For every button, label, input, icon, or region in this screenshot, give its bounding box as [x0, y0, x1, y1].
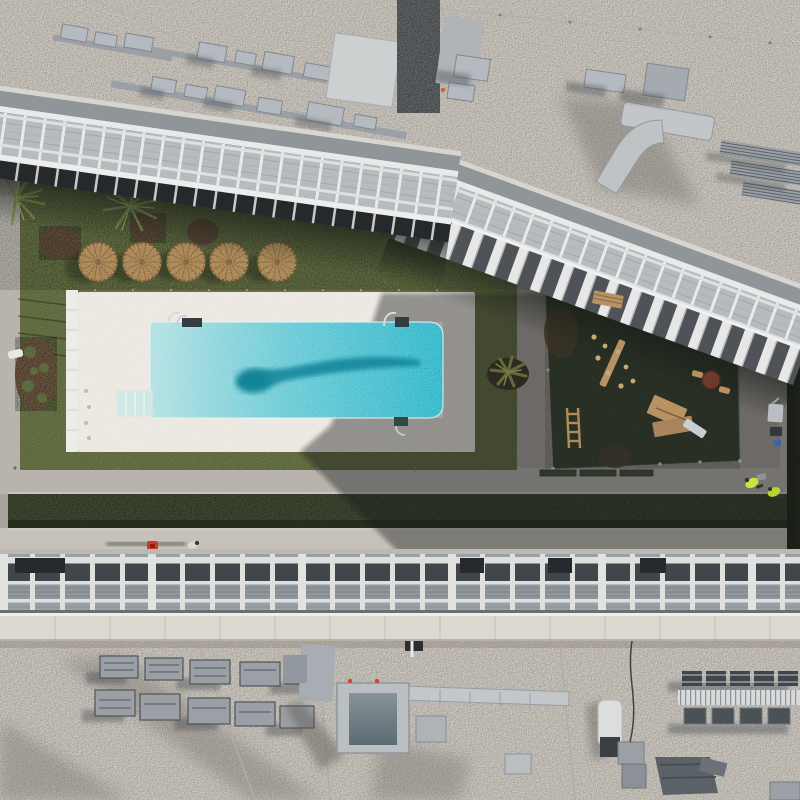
step-mat [182, 318, 202, 327]
rack-rail-band [678, 690, 800, 705]
person-shadow [106, 542, 186, 546]
blue-box [774, 440, 781, 446]
dark-vent [405, 641, 423, 651]
orange-marker [441, 88, 445, 92]
swimming-pool [117, 313, 443, 435]
roof-grid [0, 554, 800, 610]
umbrella [123, 243, 162, 282]
lower-building [0, 549, 800, 642]
skylight-glass [349, 693, 397, 745]
white-duct-unit [586, 700, 622, 760]
small-unit [505, 754, 531, 774]
plant-room-roof [326, 33, 402, 108]
aerial-photo [0, 0, 800, 800]
red-bag-detail [150, 544, 155, 548]
gray-box [622, 764, 646, 788]
step-mat [395, 317, 409, 327]
gray-box [618, 742, 644, 764]
scene-canvas [0, 0, 800, 800]
shaft-texture [397, 0, 440, 113]
umbrella [79, 243, 118, 282]
pool-steps [117, 391, 152, 416]
corner-unit [770, 782, 800, 800]
rooftop-bottom [0, 641, 800, 800]
step-mat [394, 417, 408, 426]
parapet-lip [0, 613, 800, 616]
parapet-band [0, 613, 800, 641]
pedestrian-head [195, 541, 199, 545]
parapet-cast-shadow [0, 641, 800, 648]
duct-elbow-down [416, 716, 446, 742]
white-slat-wall [66, 290, 78, 452]
rack-top-row [682, 671, 798, 686]
duct-elbow [283, 655, 307, 683]
red-marker [375, 679, 379, 683]
left-path [0, 195, 20, 475]
red-marker [348, 679, 352, 683]
grid-base-shadow [0, 610, 800, 613]
